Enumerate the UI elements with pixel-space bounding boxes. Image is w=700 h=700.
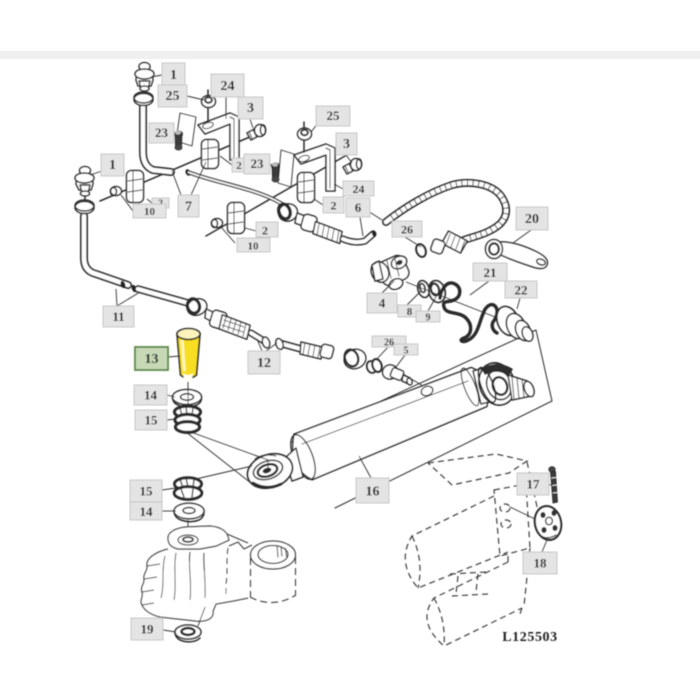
svg-text:14: 14 <box>140 504 154 519</box>
svg-text:22: 22 <box>515 283 528 298</box>
svg-text:24: 24 <box>221 79 235 94</box>
svg-text:5: 5 <box>404 346 409 357</box>
svg-text:16: 16 <box>366 485 380 500</box>
svg-text:11: 11 <box>112 309 124 324</box>
svg-text:10: 10 <box>144 206 156 218</box>
svg-text:17: 17 <box>527 477 541 492</box>
svg-text:26: 26 <box>401 223 413 237</box>
svg-text:4: 4 <box>379 296 386 311</box>
svg-text:23: 23 <box>251 156 265 171</box>
svg-text:L125503: L125503 <box>502 630 558 645</box>
svg-text:15: 15 <box>145 413 159 428</box>
svg-text:25: 25 <box>166 89 180 104</box>
svg-text:10: 10 <box>248 241 260 253</box>
svg-text:13: 13 <box>145 352 159 367</box>
svg-text:25: 25 <box>327 108 341 123</box>
svg-text:14: 14 <box>144 388 158 403</box>
svg-text:12: 12 <box>257 356 271 371</box>
svg-text:7: 7 <box>185 200 192 215</box>
svg-text:1: 1 <box>109 158 116 173</box>
svg-text:26: 26 <box>384 338 394 349</box>
svg-text:20: 20 <box>525 212 539 227</box>
svg-text:2: 2 <box>331 199 337 213</box>
svg-text:2: 2 <box>262 224 268 238</box>
svg-text:3: 3 <box>343 137 350 152</box>
svg-text:15: 15 <box>140 484 154 499</box>
svg-text:19: 19 <box>141 622 155 637</box>
svg-text:1: 1 <box>170 68 177 83</box>
svg-text:18: 18 <box>534 556 548 571</box>
svg-text:2: 2 <box>236 160 242 172</box>
svg-text:23: 23 <box>155 125 169 140</box>
svg-text:6: 6 <box>355 200 362 215</box>
svg-text:9: 9 <box>426 313 431 324</box>
svg-text:8: 8 <box>407 306 413 318</box>
svg-text:24: 24 <box>353 182 365 196</box>
svg-text:21: 21 <box>484 265 497 280</box>
svg-text:3: 3 <box>247 101 254 116</box>
